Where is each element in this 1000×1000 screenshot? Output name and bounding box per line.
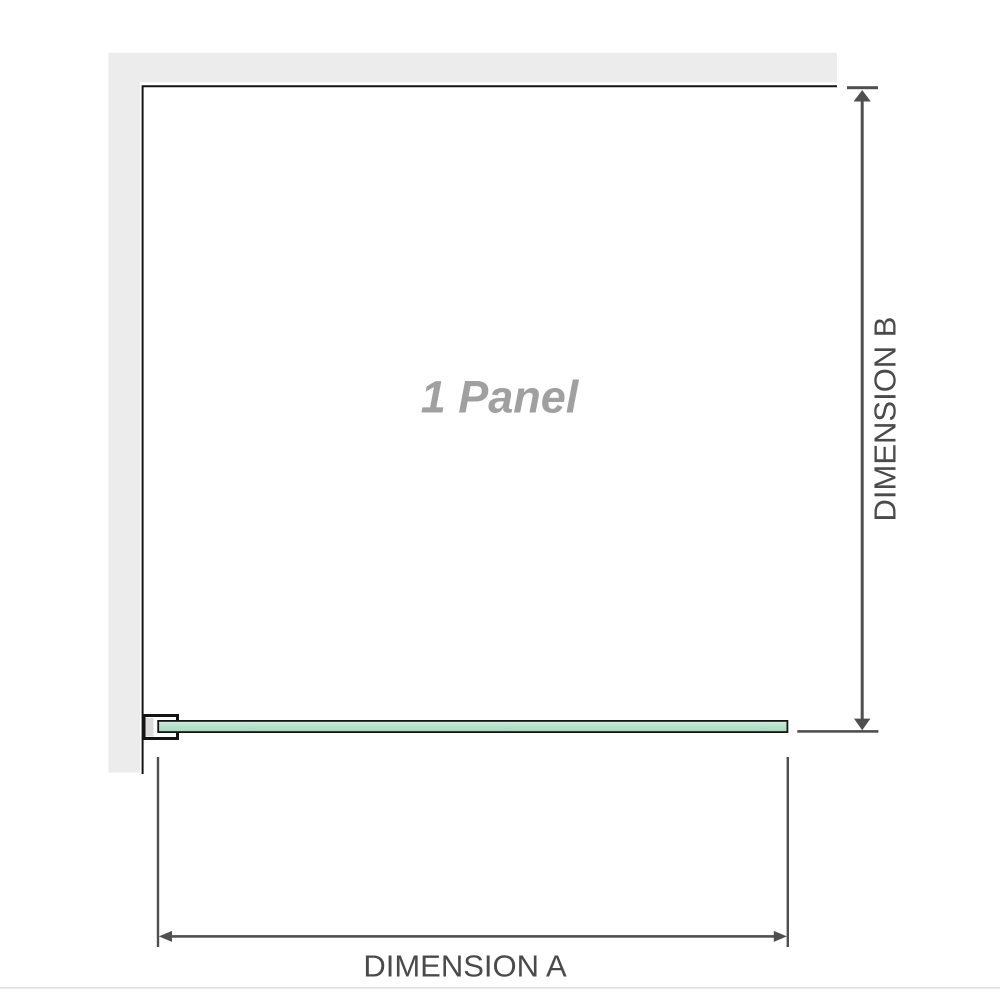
svg-text:1 Panel: 1 Panel bbox=[421, 372, 580, 423]
svg-text:DIMENSION B: DIMENSION B bbox=[868, 317, 903, 522]
svg-text:DIMENSION A: DIMENSION A bbox=[363, 949, 567, 984]
